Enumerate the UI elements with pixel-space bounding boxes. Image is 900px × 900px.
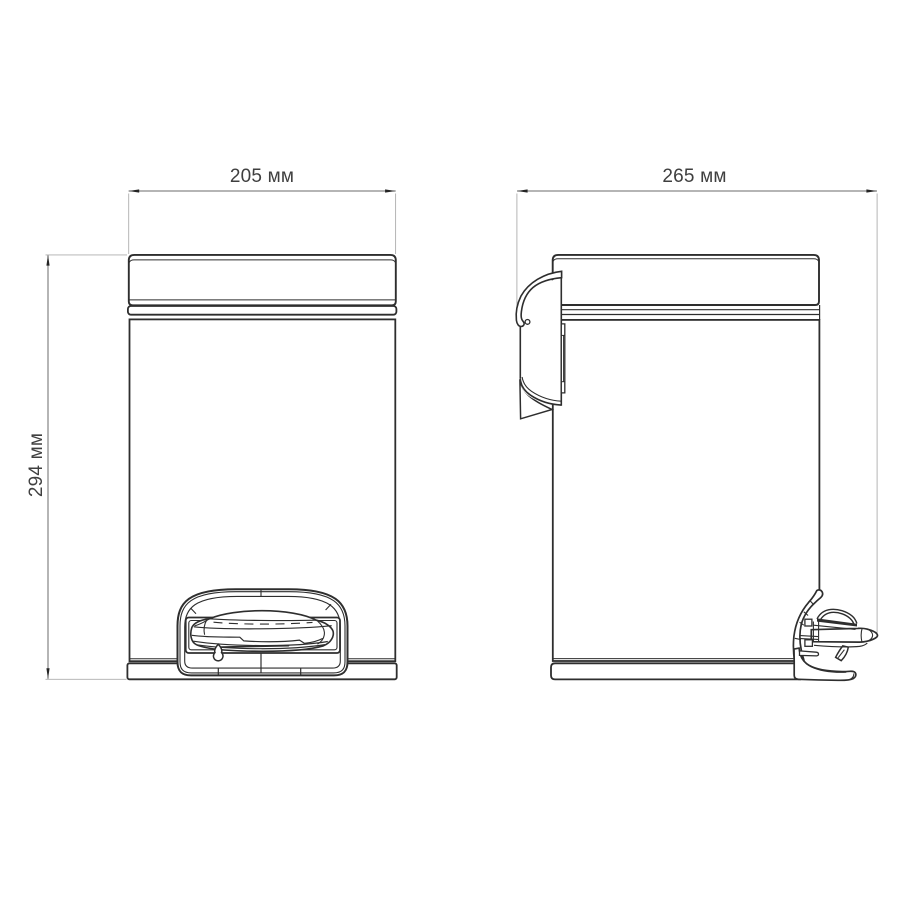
svg-text:294 мм: 294 мм bbox=[26, 433, 47, 497]
svg-text:205 мм: 205 мм bbox=[230, 166, 294, 187]
svg-text:265 мм: 265 мм bbox=[662, 166, 726, 187]
